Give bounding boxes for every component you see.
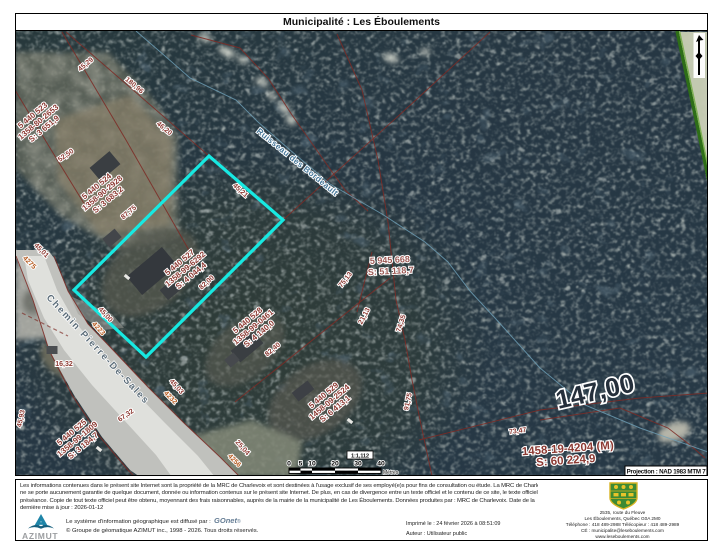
svg-text:40: 40 bbox=[377, 461, 385, 468]
svg-text:10: 10 bbox=[308, 461, 316, 468]
svg-text:30: 30 bbox=[354, 461, 362, 468]
svg-text:5: 5 bbox=[299, 461, 303, 468]
svg-text:1:1,112: 1:1,112 bbox=[351, 454, 369, 460]
svg-text:0: 0 bbox=[287, 461, 291, 468]
svg-text:5 945 668: 5 945 668 bbox=[370, 254, 411, 266]
svg-text:16,32: 16,32 bbox=[55, 361, 73, 368]
svg-text:Mètres: Mètres bbox=[383, 470, 399, 475]
svg-text:Projection : NAD 1983 MTM 7: Projection : NAD 1983 MTM 7 bbox=[627, 468, 707, 475]
svg-text:20: 20 bbox=[331, 461, 339, 468]
